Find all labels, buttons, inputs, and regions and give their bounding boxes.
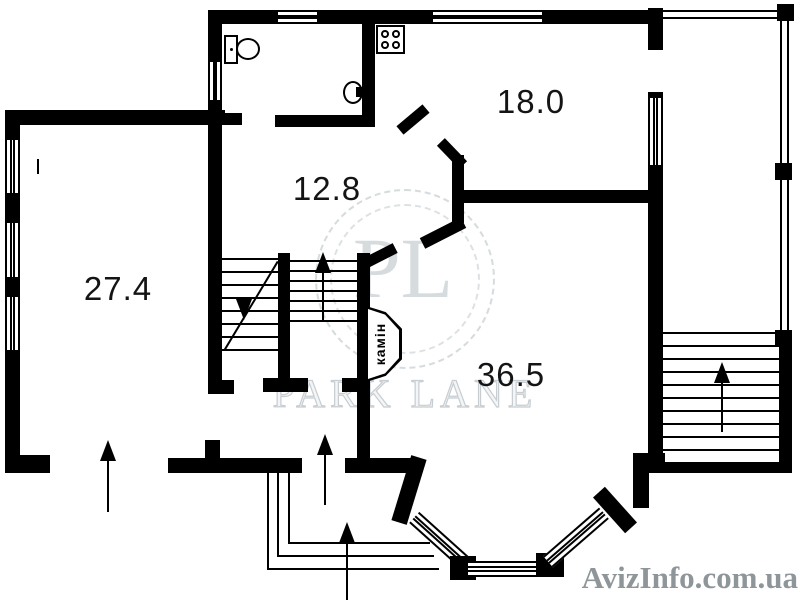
terrace-rail-top (663, 10, 789, 19)
entrance-arrow-shaft (107, 458, 109, 512)
fireplace-label: камін (372, 311, 396, 377)
entrance-arrow-shaft (324, 452, 326, 505)
window-pane (433, 15, 542, 20)
entrance-up-arrow-icon (100, 440, 116, 461)
window-pane (546, 511, 605, 564)
terrace-door-opening (648, 50, 663, 92)
window-pane (213, 62, 218, 100)
wall-south-right (345, 458, 413, 473)
exterior-stair-arrow-shaft (721, 378, 723, 432)
wall-south-jamb (205, 440, 220, 460)
wall-hall-west (208, 110, 222, 394)
window-north-2 (433, 10, 542, 24)
stove-burner (392, 30, 400, 38)
wall-wc-kitchen-divider (362, 24, 375, 127)
sink-tap (356, 87, 363, 97)
exterior-stair-wall (779, 330, 792, 473)
window-pane (468, 566, 544, 572)
window-west-2 (5, 223, 20, 277)
wall-south-left (168, 458, 302, 473)
stair-up-arrow-icon (315, 252, 331, 273)
entrance-arrow-shaft (346, 540, 348, 600)
window-west-1 (5, 140, 20, 193)
stove-burner (381, 30, 389, 38)
terrace-post-1 (777, 4, 794, 21)
room-label-36-5: 36.5 (451, 356, 571, 394)
window-wc (208, 62, 222, 100)
wall-fireplace-foot (342, 378, 358, 392)
wall-stair-middle-foot (263, 378, 308, 392)
stove-burner (381, 41, 389, 49)
wall-stair-middle (278, 253, 290, 383)
window-west-3 (5, 297, 20, 350)
floor-plan: PL PARK LANE AvizInfo.com.ua (0, 0, 800, 600)
wall-bay-east-top (633, 453, 665, 471)
wall-southwest-corner (5, 455, 50, 473)
terrace-post-2 (775, 163, 792, 180)
window-pane (10, 297, 15, 350)
window-north-1 (278, 10, 317, 24)
window-pane (278, 15, 317, 20)
window-east (648, 98, 663, 165)
bay-window-right (543, 508, 609, 568)
wall-wc-south (275, 115, 362, 127)
window-pane (653, 98, 658, 165)
door-jamb-kitchen-a (396, 104, 429, 134)
room-label-12-8: 12.8 (267, 170, 387, 208)
room-label-27-4: 27.4 (58, 270, 178, 308)
window-pane (10, 223, 15, 277)
room-label-18-0: 18.0 (471, 83, 591, 121)
structure-layer: камін (0, 0, 800, 600)
exterior-stair-base (663, 462, 792, 473)
toilet-button (230, 48, 233, 51)
door-jamb-room-a (420, 217, 466, 249)
entrance-up-arrow-icon (317, 434, 333, 455)
wall-hall-west-foot (208, 380, 234, 394)
stove-burner (392, 41, 400, 49)
stove-icon (376, 25, 405, 54)
stair-down-arrow-icon (236, 299, 252, 320)
wall-northwest (5, 110, 225, 125)
porch-step-inner (288, 473, 430, 544)
toilet-bowl-icon (236, 38, 260, 60)
entrance-up-arrow-icon (339, 522, 355, 543)
wall-wc-door-jamb (225, 113, 242, 125)
wall-kitchen-south (452, 190, 663, 203)
exterior-stair-up-arrow-icon (714, 362, 730, 383)
window-pane (10, 140, 15, 193)
bay-window-center (468, 561, 544, 577)
